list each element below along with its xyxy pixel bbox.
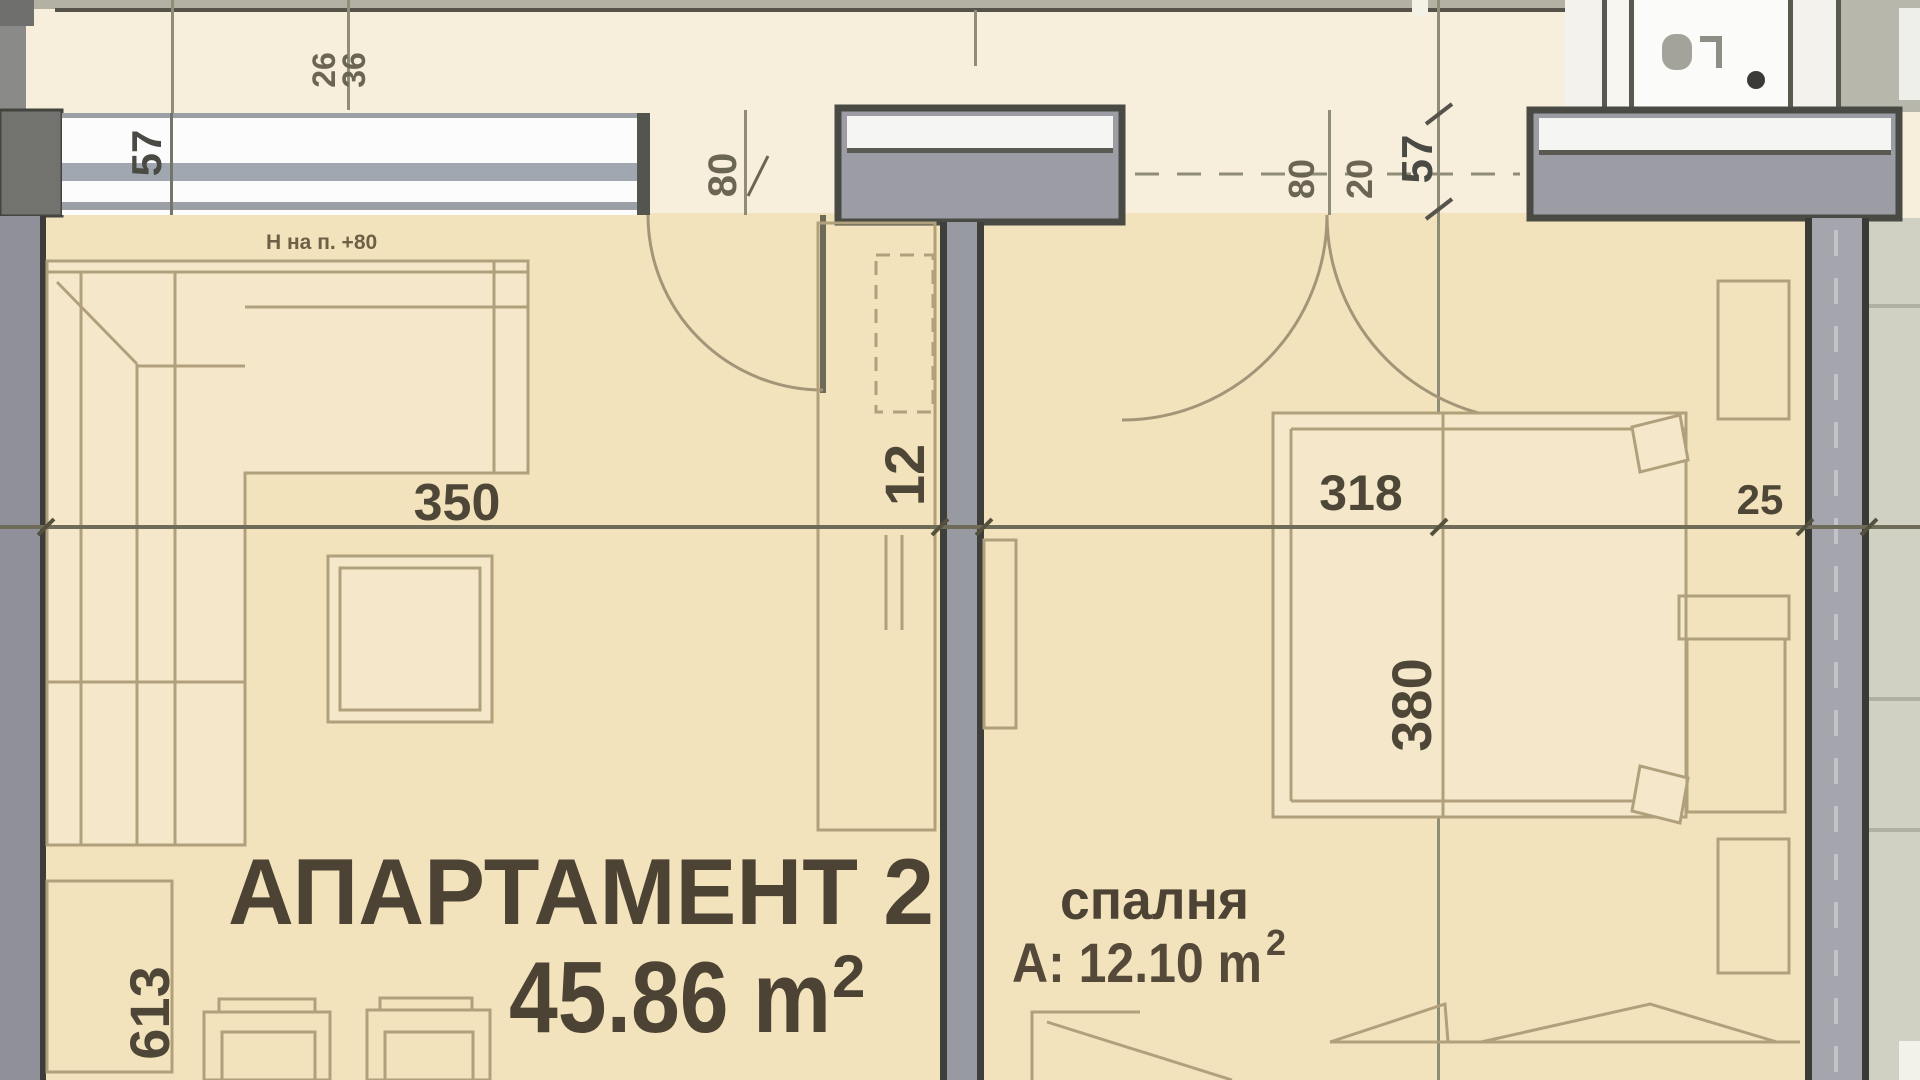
svg-text:613: 613: [118, 966, 181, 1059]
svg-text:350: 350: [414, 474, 501, 532]
svg-text:2: 2: [1266, 922, 1286, 963]
svg-text:380: 380: [1380, 658, 1443, 751]
svg-text:25: 25: [1737, 476, 1784, 523]
svg-text:20: 20: [1339, 159, 1380, 199]
svg-text:57: 57: [1393, 135, 1442, 184]
svg-text:А: 12.10 m: А: 12.10 m: [1012, 931, 1262, 994]
svg-text:36: 36: [336, 52, 372, 88]
svg-text:2: 2: [832, 943, 865, 1010]
svg-text:57: 57: [123, 130, 170, 177]
svg-text:спалня: спалня: [1060, 868, 1249, 931]
svg-text:80: 80: [1281, 159, 1322, 199]
svg-text:12: 12: [873, 444, 936, 506]
svg-text:318: 318: [1319, 465, 1402, 521]
svg-text:АПАРТАМЕНТ 2: АПАРТАМЕНТ 2: [228, 839, 934, 944]
svg-text:Н на п. +80: Н на п. +80: [266, 231, 377, 254]
svg-text:80: 80: [701, 153, 745, 198]
svg-text:45.86 m: 45.86 m: [509, 942, 831, 1054]
